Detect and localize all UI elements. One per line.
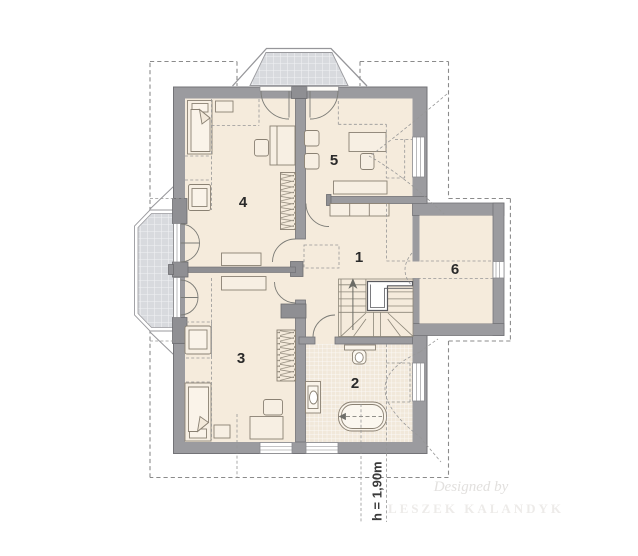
svg-text:Designed by: Designed by (433, 479, 509, 495)
svg-text:4: 4 (239, 194, 248, 211)
svg-text:h = 1,90m: h = 1,90m (370, 461, 385, 521)
svg-text:3: 3 (237, 350, 245, 367)
svg-text:1: 1 (355, 249, 363, 266)
svg-text:5: 5 (330, 152, 338, 169)
svg-text:2: 2 (351, 375, 359, 392)
svg-text:LESZEK KALANDYK: LESZEK KALANDYK (388, 501, 564, 516)
svg-text:6: 6 (451, 261, 459, 278)
